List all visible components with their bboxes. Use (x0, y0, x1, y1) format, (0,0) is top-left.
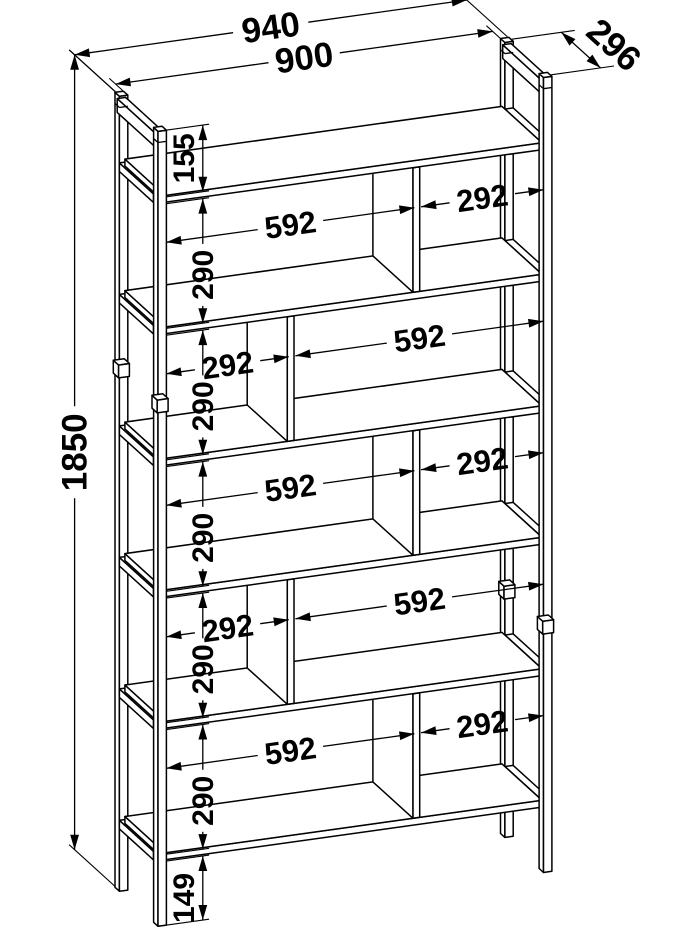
dim-row3-right-compartment-label: 292 (454, 440, 510, 482)
divider-row-1-front-face (413, 167, 420, 292)
ext-296-front (551, 66, 614, 75)
divider-row-4-front-face (287, 579, 294, 705)
left-back-post-front-face (119, 95, 127, 891)
dim-row5-right-compartment-start-arrowhead-icon (421, 726, 437, 735)
dim-bottom-clearance-label: 149 (168, 873, 201, 923)
ext-1850-top (69, 50, 115, 92)
dim-row4-left-compartment-label: 292 (200, 607, 256, 649)
shelf-technical-drawing: 1552902902902902901495922922925925922922… (0, 0, 700, 933)
left-back-post-joint-front-face (119, 364, 130, 378)
dim-overall-width-start-arrowhead-icon (75, 48, 91, 57)
dim-row3-left-compartment-label: 592 (262, 467, 318, 509)
dim-overall-width-line-b (308, 0, 467, 22)
left-front-post-joint-front-face (157, 399, 168, 413)
dim-row-height-4-start-arrowhead-icon (198, 593, 207, 608)
dim-row-height-5-start-arrowhead-icon (198, 725, 207, 740)
ext-1850-bottom (69, 845, 115, 887)
dim-row1-left-compartment-start-arrowhead-icon (166, 236, 181, 245)
dim-inner-width-label: 900 (273, 35, 336, 82)
dim-inner-width-start-arrowhead-icon (116, 78, 131, 87)
dim-row-height-1-start-arrowhead-icon (198, 199, 207, 214)
dim-row2-right-compartment-label: 592 (391, 318, 447, 360)
dim-row3-left-compartment-start-arrowhead-icon (166, 499, 181, 508)
right-back-post-joint-front-face (504, 585, 515, 599)
dim-overall-width-end-arrowhead-icon (451, 0, 467, 6)
dim-overall-height-label: 1850 (56, 413, 95, 491)
dim-row-height-2-start-arrowhead-icon (198, 330, 207, 345)
dim-row-height-2-label: 290 (187, 381, 220, 431)
dim-row1-right-compartment-label: 292 (454, 177, 510, 219)
dim-row1-left-compartment-label: 592 (262, 204, 318, 246)
dim-top-clearance-label: 155 (168, 133, 201, 183)
dim-inner-width-line-b (340, 31, 493, 52)
dim-row-height-4-label: 290 (187, 644, 220, 694)
dim-inner-width-line-a (116, 63, 269, 84)
divider-row-5-front-face (413, 693, 420, 819)
divider-row-3-front-face (413, 430, 420, 556)
divider-row-2-front-face (287, 316, 294, 442)
left-front-post-front-face (158, 130, 166, 926)
right-front-post-joint-front-face (543, 620, 554, 634)
dim-row-height-3-label: 290 (187, 513, 220, 563)
dim-row5-left-compartment-label: 592 (262, 730, 318, 772)
dim-row5-right-compartment-label: 292 (454, 703, 510, 745)
drawing-canvas: 1552902902902902901495922922925925922922… (0, 0, 700, 933)
dim-bottom-clearance-start-arrowhead-icon (198, 856, 207, 871)
dim-row2-right-compartment-start-arrowhead-icon (295, 349, 311, 358)
dim-row4-right-compartment-start-arrowhead-icon (295, 612, 311, 621)
dim-row5-left-compartment-start-arrowhead-icon (166, 762, 181, 771)
dim-row2-left-compartment-start-arrowhead-icon (166, 367, 181, 376)
dim-row1-right-compartment-start-arrowhead-icon (421, 200, 437, 209)
right-front-post-front-face (544, 76, 552, 872)
dim-overall-width-line-a (75, 33, 234, 55)
dim-row-height-3-start-arrowhead-icon (198, 462, 207, 477)
dim-row4-left-compartment-start-arrowhead-icon (166, 630, 181, 639)
dim-row2-left-compartment-label: 292 (200, 344, 256, 386)
dim-row3-right-compartment-start-arrowhead-icon (421, 463, 437, 472)
dim-row-height-5-label: 290 (187, 776, 220, 826)
dim-row-height-1-label: 290 (187, 250, 220, 300)
dim-row4-right-compartment-label: 592 (391, 581, 447, 623)
frame-rails (119, 108, 547, 860)
dim-inner-width-end-arrowhead-icon (477, 29, 493, 38)
